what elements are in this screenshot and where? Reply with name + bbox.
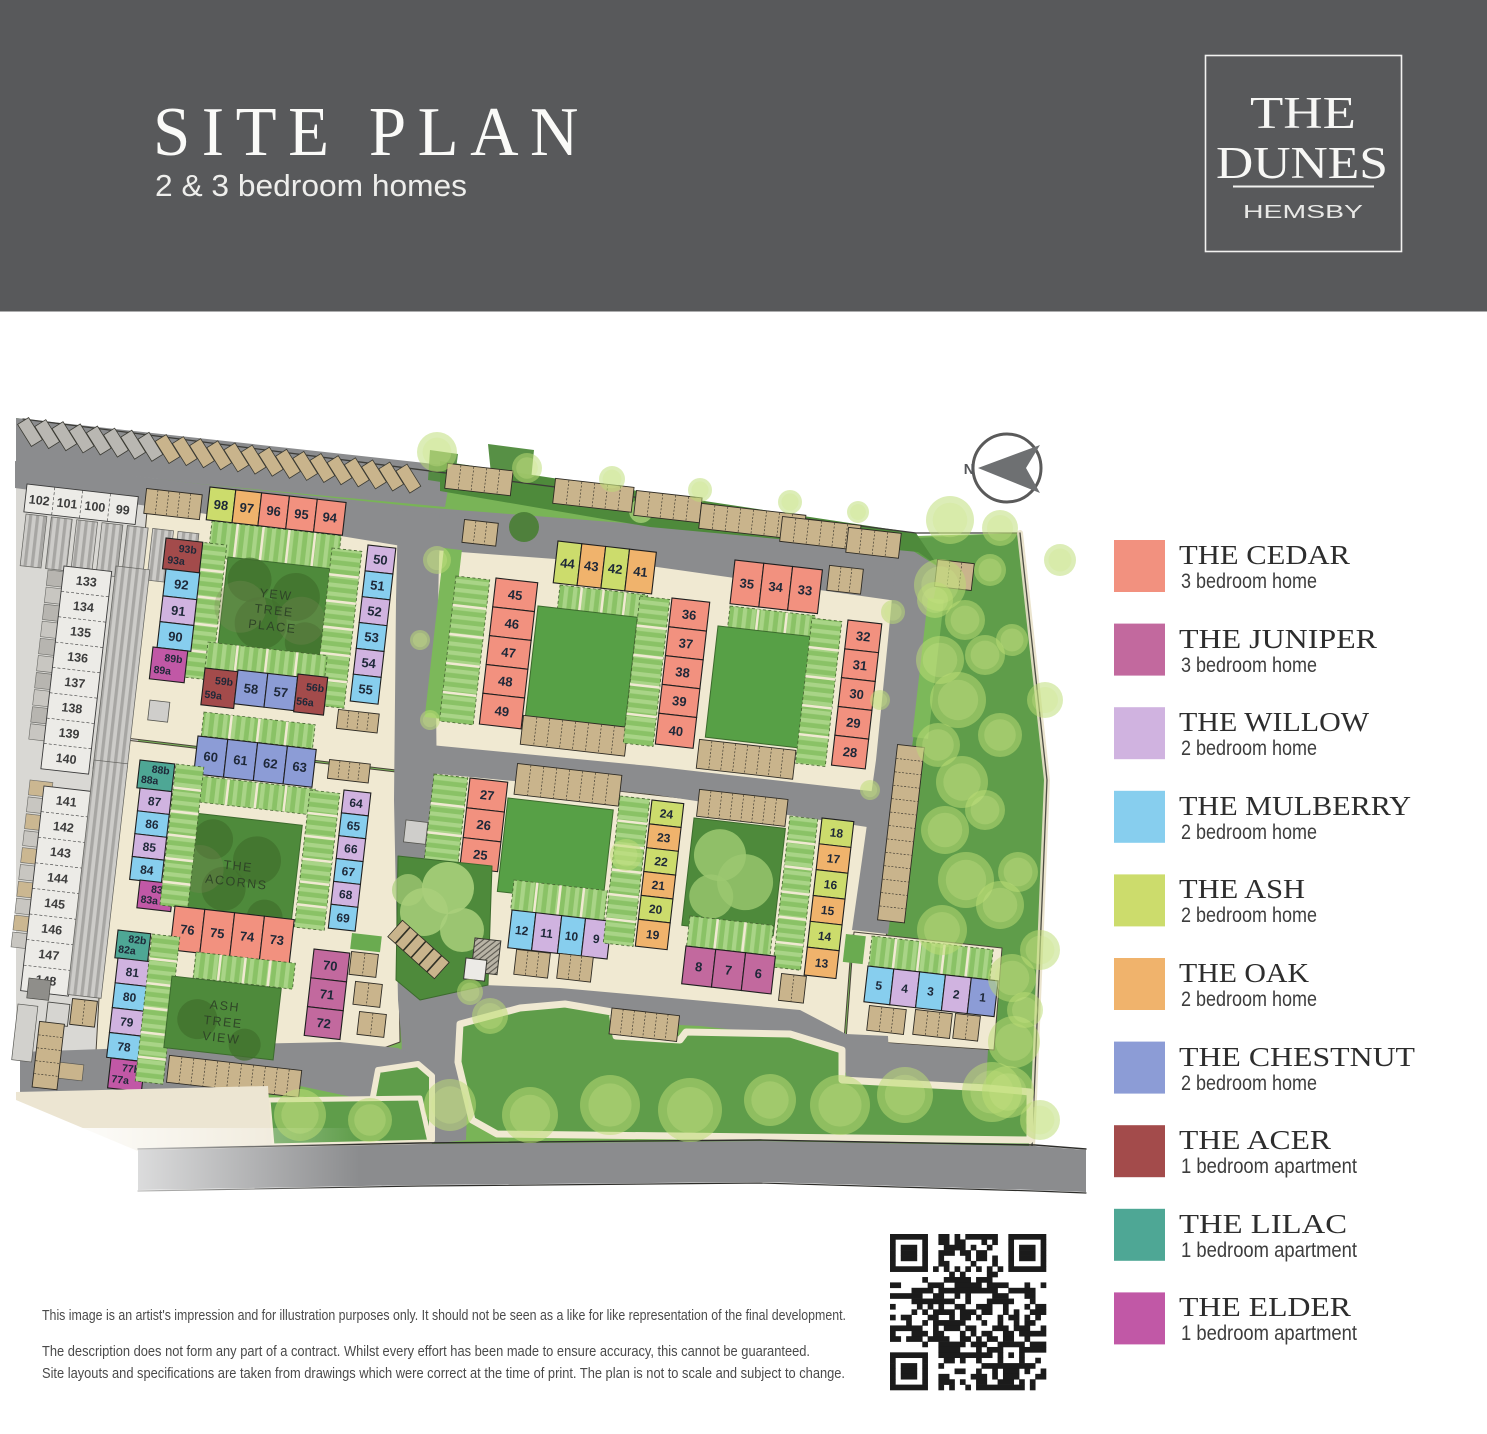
svg-text:82a: 82a — [118, 944, 137, 958]
svg-text:2 bedroom home: 2 bedroom home — [1181, 988, 1317, 1011]
svg-text:THE CEDAR: THE CEDAR — [1179, 540, 1350, 570]
svg-text:18: 18 — [829, 825, 844, 840]
svg-text:54: 54 — [361, 655, 378, 672]
svg-text:30: 30 — [849, 686, 865, 703]
svg-text:31: 31 — [852, 657, 868, 674]
svg-text:23: 23 — [656, 830, 671, 845]
svg-text:58: 58 — [243, 681, 259, 698]
svg-text:133: 133 — [75, 574, 97, 590]
svg-text:98: 98 — [213, 497, 229, 514]
svg-text:83a: 83a — [140, 894, 159, 908]
svg-text:147: 147 — [38, 947, 60, 963]
svg-text:1 bedroom apartment: 1 bedroom apartment — [1181, 1239, 1357, 1262]
svg-text:49: 49 — [494, 703, 510, 720]
svg-text:1 bedroom apartment: 1 bedroom apartment — [1181, 1155, 1357, 1178]
svg-text:99: 99 — [115, 502, 130, 517]
svg-text:137: 137 — [64, 675, 86, 691]
svg-text:86: 86 — [145, 817, 160, 832]
svg-text:19: 19 — [645, 927, 660, 942]
svg-text:79: 79 — [119, 1014, 134, 1029]
svg-text:35: 35 — [739, 575, 755, 592]
svg-text:51: 51 — [369, 577, 385, 594]
svg-text:95: 95 — [293, 506, 309, 523]
svg-text:2 & 3 bedroom homes: 2 & 3 bedroom homes — [155, 168, 467, 203]
svg-text:77a: 77a — [111, 1073, 130, 1087]
svg-text:67: 67 — [341, 864, 356, 879]
svg-text:2 bedroom home: 2 bedroom home — [1181, 737, 1317, 760]
svg-text:93a: 93a — [167, 554, 186, 568]
svg-text:90: 90 — [167, 628, 183, 645]
svg-text:139: 139 — [58, 726, 80, 742]
svg-text:THE ELDER: THE ELDER — [1179, 1292, 1351, 1322]
svg-text:57: 57 — [273, 684, 289, 701]
svg-text:3 bedroom home: 3 bedroom home — [1181, 570, 1317, 593]
svg-text:38: 38 — [675, 664, 691, 681]
svg-text:65: 65 — [346, 818, 361, 833]
svg-text:80: 80 — [122, 990, 137, 1005]
svg-text:136: 136 — [67, 650, 89, 666]
svg-text:75: 75 — [209, 925, 225, 942]
svg-text:21: 21 — [651, 878, 666, 893]
svg-text:THE CHESTNUT: THE CHESTNUT — [1179, 1042, 1416, 1072]
svg-text:62: 62 — [262, 755, 278, 772]
svg-text:HEMSBY: HEMSBY — [1243, 201, 1363, 222]
svg-text:29: 29 — [845, 715, 861, 732]
svg-text:17: 17 — [826, 851, 841, 866]
svg-text:THE LILAC: THE LILAC — [1179, 1209, 1347, 1239]
svg-text:THE JUNIPER: THE JUNIPER — [1179, 624, 1377, 654]
svg-text:34: 34 — [768, 579, 785, 596]
svg-text:Site layouts and specification: Site layouts and specifications are take… — [42, 1365, 845, 1382]
svg-text:THE: THE — [1250, 88, 1356, 138]
svg-text:59b: 59b — [214, 675, 233, 689]
svg-text:56a: 56a — [296, 695, 315, 709]
svg-text:144: 144 — [46, 870, 68, 886]
svg-text:73: 73 — [269, 932, 285, 949]
svg-text:68: 68 — [338, 887, 353, 902]
svg-text:39: 39 — [671, 693, 687, 710]
svg-text:89a: 89a — [153, 664, 172, 678]
svg-text:63: 63 — [292, 759, 308, 776]
svg-text:100: 100 — [84, 499, 106, 515]
svg-text:61: 61 — [233, 752, 249, 769]
svg-text:138: 138 — [61, 700, 83, 716]
svg-text:15: 15 — [820, 903, 835, 918]
svg-text:60: 60 — [203, 749, 219, 766]
svg-text:2 bedroom home: 2 bedroom home — [1181, 904, 1317, 927]
svg-text:101: 101 — [56, 496, 78, 512]
svg-text:THE MULBERRY: THE MULBERRY — [1179, 791, 1411, 821]
svg-text:134: 134 — [72, 599, 94, 615]
svg-text:26: 26 — [476, 817, 492, 834]
svg-text:64: 64 — [349, 796, 364, 811]
svg-text:36: 36 — [681, 606, 697, 623]
svg-text:89b: 89b — [164, 652, 183, 666]
svg-text:SITE PLAN: SITE PLAN — [153, 94, 590, 171]
svg-text:33: 33 — [797, 582, 813, 599]
svg-text:92: 92 — [173, 576, 189, 593]
svg-text:145: 145 — [44, 896, 66, 912]
svg-text:146: 146 — [41, 921, 63, 937]
svg-text:10: 10 — [564, 929, 579, 944]
svg-text:25: 25 — [472, 847, 488, 864]
svg-text:1 bedroom apartment: 1 bedroom apartment — [1181, 1322, 1357, 1345]
svg-text:97: 97 — [239, 500, 255, 517]
svg-text:55: 55 — [358, 681, 374, 698]
svg-text:N: N — [964, 462, 974, 478]
svg-text:44: 44 — [559, 555, 576, 572]
svg-text:42: 42 — [607, 561, 623, 578]
svg-text:71: 71 — [319, 986, 335, 1003]
svg-text:70: 70 — [322, 957, 338, 974]
svg-text:78: 78 — [116, 1039, 131, 1054]
svg-text:102: 102 — [28, 492, 50, 508]
svg-text:56b: 56b — [305, 681, 324, 695]
svg-text:40: 40 — [668, 723, 684, 740]
svg-text:142: 142 — [52, 819, 74, 835]
svg-text:22: 22 — [654, 854, 669, 869]
svg-text:3 bedroom home: 3 bedroom home — [1181, 654, 1317, 677]
svg-text:43: 43 — [583, 558, 599, 575]
svg-text:14: 14 — [817, 929, 832, 944]
svg-text:52: 52 — [367, 603, 383, 620]
svg-text:76: 76 — [179, 921, 195, 938]
svg-text:85: 85 — [142, 840, 157, 855]
svg-text:88a: 88a — [140, 774, 159, 788]
svg-text:32: 32 — [855, 628, 871, 645]
svg-text:45: 45 — [507, 587, 523, 604]
svg-text:66: 66 — [343, 841, 358, 856]
svg-text:91: 91 — [170, 603, 186, 620]
svg-text:This image is an artist's impr: This image is an artist's impression and… — [42, 1307, 846, 1324]
svg-text:The description does not form: The description does not form any part o… — [42, 1343, 810, 1360]
svg-text:THE ASH: THE ASH — [1179, 874, 1305, 904]
svg-text:143: 143 — [49, 845, 71, 861]
svg-text:24: 24 — [659, 806, 674, 821]
svg-text:47: 47 — [501, 644, 517, 661]
svg-text:140: 140 — [55, 751, 77, 767]
svg-text:48: 48 — [497, 673, 513, 690]
svg-text:27: 27 — [479, 787, 495, 804]
svg-text:135: 135 — [69, 624, 91, 640]
svg-text:THE WILLOW: THE WILLOW — [1179, 707, 1370, 737]
svg-text:87: 87 — [147, 794, 162, 809]
svg-text:THE ACER: THE ACER — [1179, 1125, 1331, 1155]
svg-text:2 bedroom home: 2 bedroom home — [1181, 821, 1317, 844]
svg-text:20: 20 — [648, 902, 663, 917]
svg-text:59a: 59a — [204, 689, 223, 703]
svg-text:94: 94 — [322, 509, 339, 526]
svg-text:13: 13 — [814, 956, 829, 971]
svg-text:46: 46 — [504, 616, 520, 633]
svg-text:28: 28 — [842, 744, 858, 761]
svg-text:84: 84 — [139, 862, 154, 877]
svg-text:2 bedroom home: 2 bedroom home — [1181, 1072, 1317, 1095]
svg-text:81: 81 — [125, 965, 140, 980]
svg-text:37: 37 — [678, 635, 694, 652]
svg-text:72: 72 — [316, 1015, 332, 1032]
svg-text:96: 96 — [266, 503, 282, 520]
svg-text:141: 141 — [55, 793, 77, 809]
svg-text:41: 41 — [633, 563, 649, 580]
svg-text:11: 11 — [539, 926, 554, 941]
svg-text:50: 50 — [372, 551, 388, 568]
svg-text:THE OAK: THE OAK — [1179, 958, 1310, 988]
svg-text:74: 74 — [239, 928, 256, 945]
svg-text:69: 69 — [336, 910, 351, 925]
svg-text:DUNES: DUNES — [1216, 138, 1388, 188]
svg-text:16: 16 — [823, 877, 838, 892]
svg-text:12: 12 — [514, 923, 529, 938]
svg-text:53: 53 — [364, 629, 380, 646]
